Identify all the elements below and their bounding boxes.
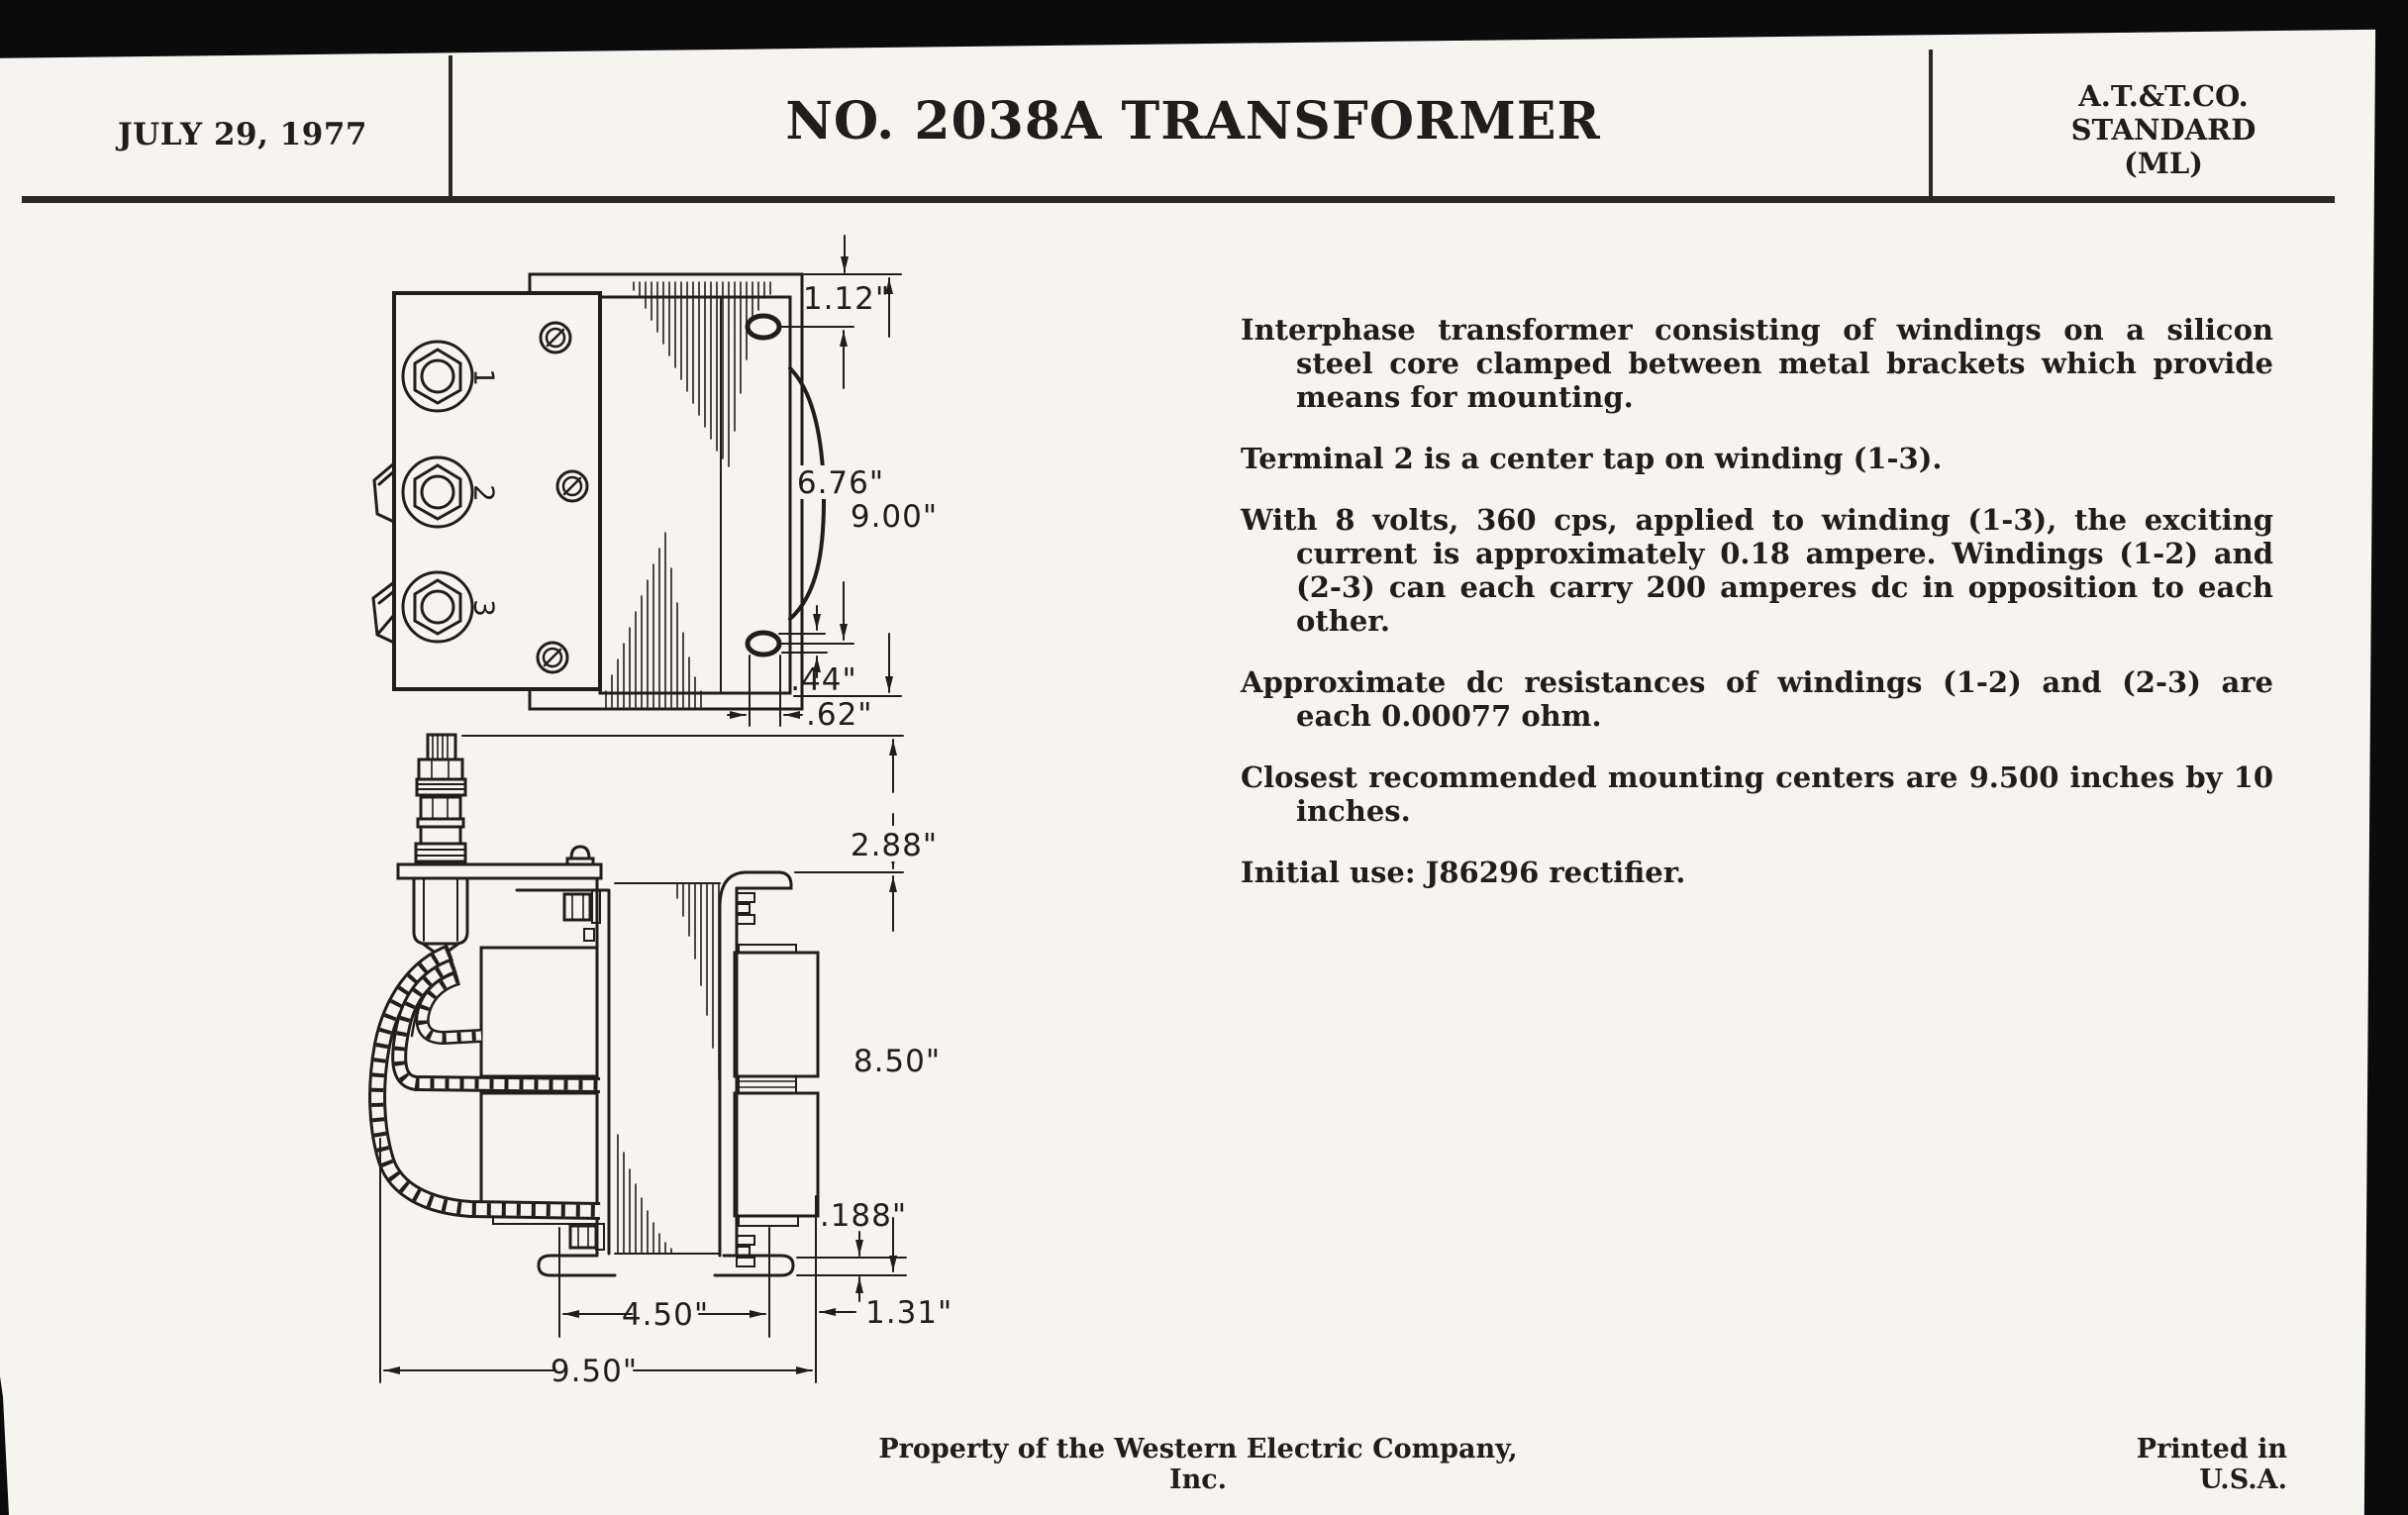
scan-edge-right [2360,0,2408,1515]
left-foot [539,1256,615,1275]
terminal-label-1: 1 [468,368,501,386]
spec-paragraph: Initial use: J86296 rectifier. [1241,856,2273,889]
dim-label-8-50: 8.50" [853,1044,941,1079]
scan-edge-top [0,0,2408,69]
spec-paragraph: With 8 volts, 360 cps, applied to windin… [1241,503,2273,638]
standard-label: STANDARD [2020,113,2307,147]
dim-label-44: .44" [790,662,857,698]
footer-property-notice: Property of the Western Electric Company… [861,1434,1535,1495]
document-title: NO. 2038A TRANSFORMER [554,91,1832,151]
spec-text-column: Interphase transformer consisting of win… [1241,313,2273,917]
scanned-document-page: JULY 29, 1977 NO. 2038A TRANSFORMER A.T.… [0,0,2408,1515]
dim-label-2-88: 2.88" [851,828,938,863]
dim-label-4-50: 4.50" [622,1297,709,1333]
core-column [615,883,720,1254]
side-view: 2.88" 8.50" .188" 4.50" 1.31" 9.50" [377,735,953,1389]
terminal-bar [398,864,601,878]
spec-paragraph: Approximate dc resistances of windings (… [1241,665,2273,733]
wire-straps [377,953,600,1211]
clip-lower [373,582,394,643]
spec-paragraph: Interphase transformer consisting of win… [1241,313,2273,414]
dim-label-1-12: 1.12" [803,281,890,317]
clip-upper [374,463,394,522]
standard-ml: (ML) [2020,147,2307,180]
header-divider-left [449,55,452,198]
standard-box: A.T.&T.CO. STANDARD (ML) [2020,79,2307,180]
mounting-slot-top [748,316,779,338]
spec-paragraph: Terminal 2 is a center tap on winding (1… [1241,442,2273,475]
footer-printed-in: Printed in U.S.A. [2040,1434,2287,1495]
dim-label-188: .188" [820,1198,907,1234]
standard-company: A.T.&T.CO. [2020,79,2307,113]
mounting-slot-bottom [748,633,779,655]
dim-label-6-76: 6.76" [797,465,884,501]
insulator [414,878,467,957]
technical-drawing: 1 2 3 [223,228,1025,1396]
top-view: 1 2 3 [373,236,939,733]
scan-edge-left [0,1376,10,1515]
terminal-label-2: 2 [468,484,501,502]
dim-label-1-31: 1.31" [865,1295,953,1331]
terminal-stud-side [416,735,465,861]
dim-label-62: .62" [806,697,873,733]
terminal-label-3: 3 [468,599,501,617]
dim-label-9-50: 9.50" [551,1354,638,1389]
header-divider-right [1929,50,1933,198]
right-coil [735,945,818,1226]
acorn-bolt [567,847,593,864]
spec-paragraph: Closest recommended mounting centers are… [1241,760,2273,828]
dim-label-9-00: 9.00" [851,499,938,535]
header-rule [22,196,2335,203]
document-date: JULY 29, 1977 [89,117,396,152]
